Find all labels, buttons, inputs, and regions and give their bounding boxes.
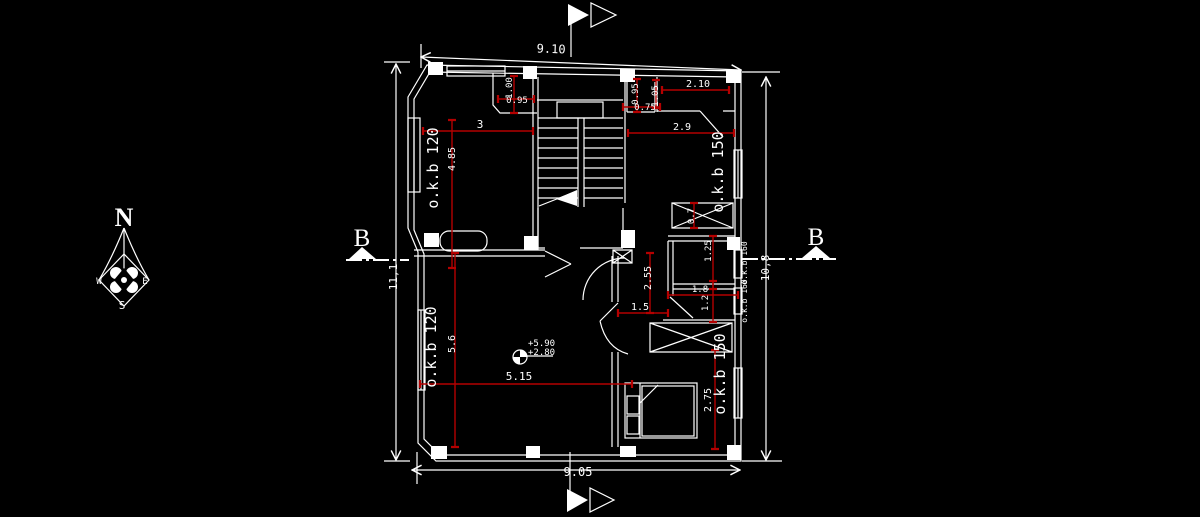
- dim-top-right-width: 2.10: [686, 79, 710, 90]
- dim-overall-right: 10,8: [759, 255, 772, 282]
- compass-east-label: E: [142, 277, 147, 287]
- level-lower-value: +2.80: [528, 348, 555, 358]
- entry-door: [545, 251, 571, 277]
- bath-door-leaf: [670, 297, 693, 318]
- section-marker-right: B: [742, 224, 836, 259]
- wall-label-okb120-upper: o.k.b 120: [424, 127, 442, 208]
- staircase: [533, 77, 625, 250]
- north-compass: N W E S: [96, 203, 149, 312]
- dim-upper-room-depth: 4.85: [447, 147, 458, 171]
- bed: [625, 383, 697, 438]
- dim-overall-top: 9.10: [536, 42, 565, 57]
- dim-overall-bottom: 9.05: [564, 465, 593, 479]
- bedroom-door: [600, 303, 628, 354]
- dim-corridor-width: 1.5: [631, 302, 649, 313]
- bench: [440, 231, 487, 251]
- cad-viewport[interactable]: N W E S B B: [0, 0, 1200, 517]
- dim-top-right-depth: 1.05: [651, 85, 661, 107]
- dim-living-depth: 5.6: [447, 335, 458, 353]
- compass-south-label: S: [119, 299, 126, 312]
- section-marker-left: B: [346, 225, 409, 260]
- compass-ornament: [110, 267, 138, 293]
- exterior-walls: [408, 65, 741, 461]
- wall-label-okb120-lower: o.k.b 120: [422, 306, 440, 387]
- section-arrow-right: [802, 246, 830, 258]
- dim-living-width: 5.15: [506, 370, 533, 383]
- dim-alcove-width: 0.95: [506, 96, 528, 106]
- furniture: [440, 231, 697, 438]
- dim-bath-lower-depth: 1.2: [701, 295, 711, 311]
- windows: [408, 66, 742, 418]
- wall-label-okb160-lower: o.k.b 160: [740, 279, 749, 323]
- compass-north-label: N: [115, 203, 134, 232]
- dim-hall-depth: 2.55: [643, 266, 654, 290]
- dim-bedroom-depth: 2.75: [703, 388, 714, 412]
- wall-label-okb160-upper: o.k.b 160: [740, 241, 749, 285]
- dim-bath-depth: 1.25: [704, 240, 714, 262]
- flag-symbol-top: [568, 3, 616, 57]
- wall-label-okb150-upper: o.k.b 150: [709, 131, 727, 212]
- corridor-door-arc: [583, 258, 625, 300]
- level-marker: +5.90 +2.80: [513, 339, 555, 364]
- dim-upper-room-width: 3: [477, 118, 484, 131]
- overall-dimension-lines: [384, 44, 782, 484]
- dim-wc-depth: 0.95: [631, 83, 641, 105]
- stair-direction-arrow: [556, 190, 577, 206]
- dim-bath-width: 1.8: [692, 285, 708, 295]
- floor-plan-drawing: N W E S B B: [0, 0, 1200, 517]
- dim-overall-left: 11,1: [387, 264, 400, 291]
- compass-west-label: W: [96, 277, 102, 287]
- dim-duct-depth: 0.7: [687, 208, 697, 224]
- dim-top-right-room-width: 2.9: [673, 122, 691, 133]
